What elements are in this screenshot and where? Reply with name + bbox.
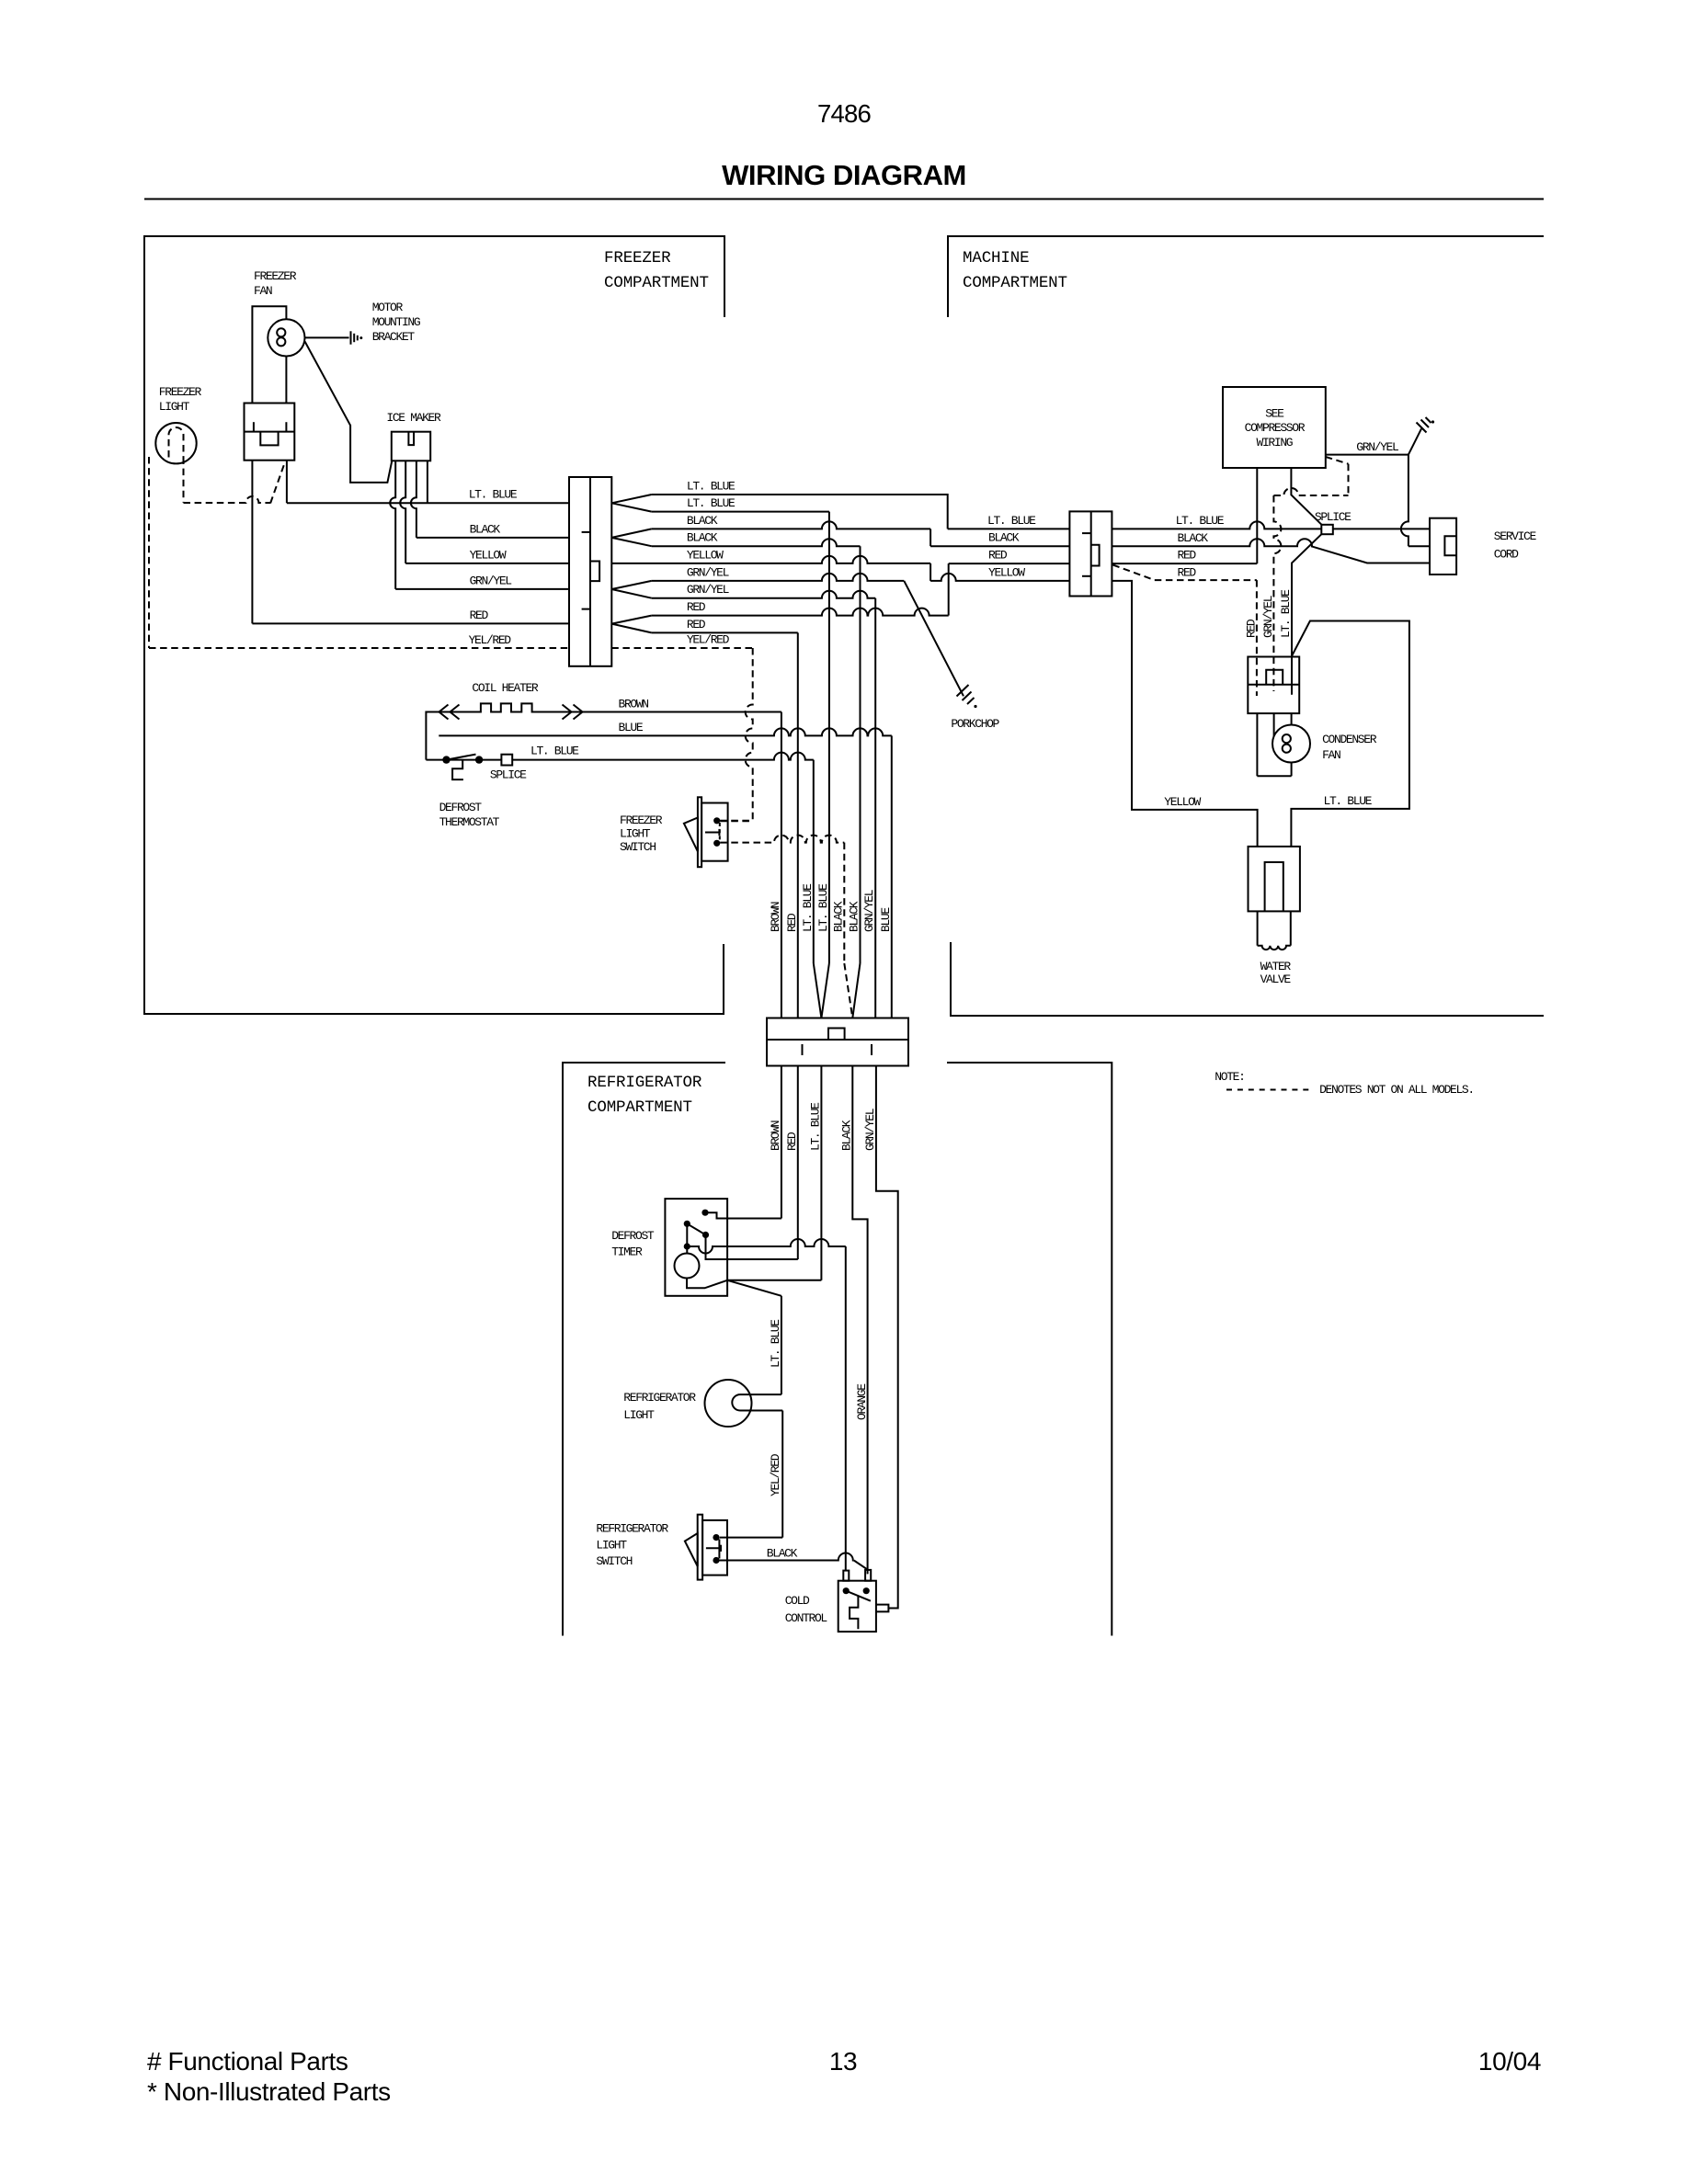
svg-text:FREEZER: FREEZER: [159, 385, 202, 399]
svg-text:BRACKET: BRACKET: [372, 330, 416, 344]
svg-text:SWITCH: SWITCH: [596, 1554, 632, 1568]
svg-text:LT. BLUE: LT. BLUE: [769, 1319, 782, 1368]
svg-text:CORD: CORD: [1494, 548, 1519, 562]
svg-text:LIGHT: LIGHT: [159, 400, 190, 414]
svg-text:DEFROST: DEFROST: [611, 1229, 655, 1243]
svg-text:RED: RED: [1178, 566, 1197, 580]
svg-text:BLUE: BLUE: [619, 721, 644, 734]
svg-text:COMPARTMENT: COMPARTMENT: [604, 274, 709, 292]
svg-text:LT. BLUE: LT. BLUE: [469, 488, 518, 502]
svg-text:RED: RED: [687, 618, 706, 631]
svg-text:7486: 7486: [817, 99, 871, 128]
svg-text:REFRIGERATOR: REFRIGERATOR: [623, 1391, 696, 1405]
svg-text:VALVE: VALVE: [1260, 973, 1292, 986]
svg-text:YELLOW: YELLOW: [1164, 795, 1201, 809]
svg-text:FREEZER: FREEZER: [604, 249, 671, 267]
svg-text:GRN/YEL: GRN/YEL: [1261, 596, 1275, 638]
svg-text:BROWN: BROWN: [769, 1120, 782, 1151]
svg-text:RED: RED: [687, 600, 706, 614]
svg-text:BROWN: BROWN: [769, 902, 782, 932]
svg-text:NOTE:: NOTE:: [1215, 1070, 1244, 1084]
svg-text:GRN/YEL: GRN/YEL: [862, 890, 876, 932]
svg-text:THERMOSTAT: THERMOSTAT: [439, 815, 500, 829]
svg-text:REFRIGERATOR: REFRIGERATOR: [596, 1521, 668, 1535]
svg-text:WIRING: WIRING: [1257, 436, 1293, 449]
svg-text:YELLOW: YELLOW: [687, 549, 724, 563]
svg-text:SPLICE: SPLICE: [1315, 510, 1352, 524]
svg-text:GRN/YEL: GRN/YEL: [470, 574, 512, 588]
svg-text:BLACK: BLACK: [988, 531, 1020, 545]
svg-text:COIL HEATER: COIL HEATER: [472, 681, 539, 695]
svg-text:MACHINE: MACHINE: [963, 249, 1029, 267]
svg-text:COMPARTMENT: COMPARTMENT: [587, 1098, 692, 1117]
svg-text:DENOTES NOT ON ALL MODELS.: DENOTES NOT ON ALL MODELS.: [1319, 1083, 1474, 1097]
svg-text:# Functional Parts: # Functional Parts: [147, 2047, 348, 2076]
svg-text:PORKCHOP: PORKCHOP: [951, 717, 999, 731]
svg-text:RED: RED: [1178, 549, 1197, 563]
svg-text:GRN/YEL: GRN/YEL: [687, 583, 729, 597]
svg-text:BLACK: BLACK: [767, 1547, 798, 1561]
svg-text:BLACK: BLACK: [831, 901, 845, 932]
svg-text:BLACK: BLACK: [839, 1120, 853, 1151]
svg-text:ICE MAKER: ICE MAKER: [386, 411, 441, 425]
svg-text:YEL/RED: YEL/RED: [469, 633, 512, 647]
svg-text:RED: RED: [470, 609, 489, 622]
svg-text:REFRIGERATOR: REFRIGERATOR: [587, 1074, 702, 1092]
svg-text:YELLOW: YELLOW: [988, 565, 1025, 579]
svg-text:BLACK: BLACK: [848, 901, 861, 932]
svg-text:BLACK: BLACK: [470, 523, 501, 537]
svg-text:BLUE: BLUE: [879, 907, 893, 932]
svg-text:LT. BLUE: LT. BLUE: [1279, 589, 1293, 638]
svg-text:FAN: FAN: [1322, 748, 1340, 762]
svg-text:CONTROL: CONTROL: [785, 1611, 827, 1625]
svg-text:WATER: WATER: [1260, 960, 1292, 973]
svg-text:13: 13: [829, 2047, 857, 2076]
svg-text:DEFROST: DEFROST: [439, 801, 483, 814]
svg-text:TIMER: TIMER: [611, 1246, 643, 1259]
svg-text:10/04: 10/04: [1478, 2047, 1541, 2076]
svg-text:YEL/RED: YEL/RED: [769, 1453, 782, 1496]
svg-text:LT. BLUE: LT. BLUE: [816, 883, 830, 932]
svg-text:SERVICE: SERVICE: [1494, 529, 1537, 543]
svg-text:YEL/RED: YEL/RED: [687, 633, 730, 647]
svg-text:BLACK: BLACK: [687, 514, 718, 528]
svg-text:SWITCH: SWITCH: [620, 840, 656, 854]
svg-text:GRN/YEL: GRN/YEL: [863, 1109, 877, 1151]
svg-text:COMPRESSOR: COMPRESSOR: [1245, 421, 1306, 435]
svg-text:BLACK: BLACK: [1178, 531, 1209, 545]
svg-text:LIGHT: LIGHT: [596, 1538, 627, 1552]
svg-text:GRN/YEL: GRN/YEL: [1356, 440, 1398, 454]
svg-text:BLACK: BLACK: [687, 531, 718, 545]
svg-text:RED: RED: [1244, 619, 1258, 638]
svg-text:YELLOW: YELLOW: [470, 549, 507, 563]
svg-text:SPLICE: SPLICE: [490, 768, 527, 782]
svg-text:FAN: FAN: [254, 284, 272, 298]
svg-text:ORANGE: ORANGE: [855, 1383, 869, 1420]
svg-text:FREEZER: FREEZER: [620, 813, 663, 827]
svg-text:LT. BLUE: LT. BLUE: [801, 883, 815, 932]
svg-text:LT. BLUE: LT. BLUE: [530, 745, 579, 758]
svg-text:LIGHT: LIGHT: [620, 827, 651, 841]
svg-text:COLD: COLD: [785, 1594, 810, 1608]
svg-text:MOUNTING: MOUNTING: [372, 315, 420, 329]
svg-text:LT. BLUE: LT. BLUE: [1324, 794, 1373, 808]
svg-text:LIGHT: LIGHT: [623, 1408, 655, 1422]
svg-text:BROWN: BROWN: [619, 698, 649, 711]
svg-text:FREEZER: FREEZER: [254, 269, 297, 283]
svg-text:COMPARTMENT: COMPARTMENT: [963, 274, 1067, 292]
svg-text:WIRING DIAGRAM: WIRING DIAGRAM: [722, 159, 966, 191]
svg-text:CONDENSER: CONDENSER: [1322, 733, 1377, 746]
svg-text:RED: RED: [785, 913, 799, 932]
svg-text:LT. BLUE: LT. BLUE: [687, 480, 736, 494]
svg-text:LT. BLUE: LT. BLUE: [687, 496, 736, 510]
svg-text:RED: RED: [988, 549, 1008, 563]
svg-text:SEE: SEE: [1265, 406, 1284, 420]
svg-text:LT. BLUE: LT. BLUE: [808, 1102, 822, 1151]
svg-text:RED: RED: [785, 1132, 799, 1151]
svg-text:LT. BLUE: LT. BLUE: [1176, 514, 1225, 528]
svg-text:GRN/YEL: GRN/YEL: [687, 565, 729, 579]
svg-text:LT. BLUE: LT. BLUE: [987, 514, 1036, 528]
svg-text:MOTOR: MOTOR: [372, 301, 404, 314]
svg-text:* Non-Illustrated Parts: * Non-Illustrated Parts: [147, 2077, 391, 2106]
